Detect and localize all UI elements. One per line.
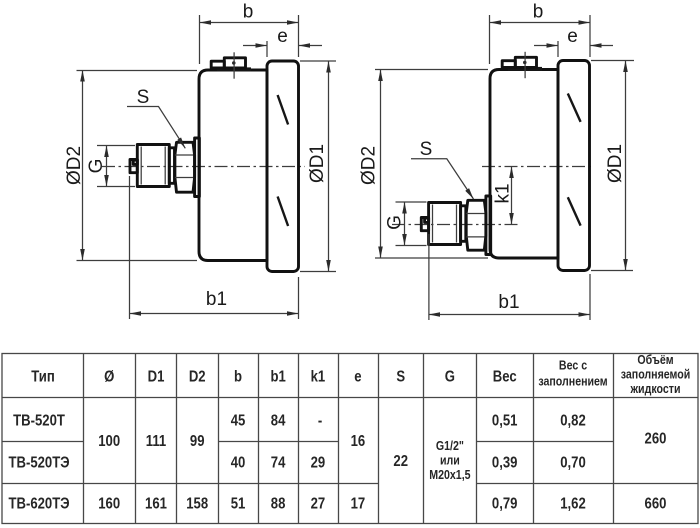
svg-text:111: 111 (146, 433, 166, 450)
svg-text:заполняемой: заполняемой (621, 368, 691, 382)
svg-text:Вес: Вес (493, 368, 517, 385)
svg-text:ØD2: ØD2 (359, 146, 380, 185)
svg-text:b1: b1 (498, 292, 519, 313)
svg-text:Тип: Тип (31, 368, 54, 385)
svg-text:G: G (385, 215, 406, 230)
svg-text:Объём: Объём (637, 353, 673, 367)
svg-text:жидкости: жидкости (630, 382, 681, 396)
svg-text:40: 40 (231, 454, 246, 471)
svg-text:k1: k1 (493, 183, 514, 203)
svg-text:e: e (567, 26, 578, 47)
svg-text:160: 160 (98, 495, 120, 512)
svg-text:-: - (318, 412, 322, 429)
svg-text:0,51: 0,51 (492, 412, 518, 429)
svg-text:S: S (396, 368, 405, 385)
svg-text:17: 17 (351, 495, 366, 512)
svg-text:100: 100 (98, 433, 120, 450)
svg-text:22: 22 (393, 453, 408, 470)
svg-text:b: b (243, 2, 254, 23)
svg-text:0,82: 0,82 (560, 412, 586, 429)
svg-text:G: G (86, 159, 107, 174)
svg-text:S: S (420, 139, 433, 160)
svg-text:G1/2": G1/2" (436, 439, 464, 453)
svg-text:D2: D2 (189, 368, 206, 385)
svg-text:16: 16 (351, 433, 366, 450)
svg-text:88: 88 (271, 495, 286, 512)
svg-text:e: e (354, 368, 361, 385)
svg-text:ТВ-520ТЭ: ТВ-520ТЭ (8, 454, 69, 471)
svg-text:0,79: 0,79 (492, 495, 518, 512)
svg-text:99: 99 (190, 433, 205, 450)
svg-text:S: S (137, 87, 150, 108)
svg-text:0,70: 0,70 (560, 454, 586, 471)
svg-text:b: b (234, 368, 242, 385)
svg-text:84: 84 (271, 412, 286, 429)
svg-text:161: 161 (145, 495, 167, 512)
svg-text:b1: b1 (270, 368, 285, 385)
svg-text:45: 45 (231, 412, 246, 429)
svg-text:Вес с: Вес с (559, 359, 588, 373)
svg-text:M20x1,5: M20x1,5 (429, 468, 471, 482)
svg-text:D1: D1 (148, 368, 165, 385)
svg-text:G: G (445, 368, 455, 385)
svg-text:74: 74 (271, 454, 286, 471)
svg-text:ТВ-620ТЭ: ТВ-620ТЭ (8, 495, 69, 512)
svg-text:ТВ-520Т: ТВ-520Т (13, 412, 65, 429)
svg-text:27: 27 (311, 495, 326, 512)
svg-text:158: 158 (186, 495, 208, 512)
svg-text:660: 660 (645, 495, 667, 512)
svg-text:b: b (533, 2, 544, 23)
svg-text:1,62: 1,62 (560, 495, 586, 512)
svg-text:заполнением: заполнением (538, 375, 607, 389)
svg-text:51: 51 (231, 495, 246, 512)
svg-text:k1: k1 (311, 368, 326, 385)
svg-text:Ø: Ø (104, 368, 114, 385)
svg-text:0,39: 0,39 (492, 454, 518, 471)
svg-text:b1: b1 (206, 289, 227, 310)
svg-text:ØD1: ØD1 (307, 144, 328, 183)
svg-text:или: или (440, 454, 460, 468)
svg-text:ØD2: ØD2 (64, 146, 85, 185)
svg-text:ØD1: ØD1 (605, 144, 626, 183)
svg-text:e: e (277, 26, 288, 47)
svg-text:260: 260 (645, 430, 667, 447)
svg-text:29: 29 (311, 454, 326, 471)
